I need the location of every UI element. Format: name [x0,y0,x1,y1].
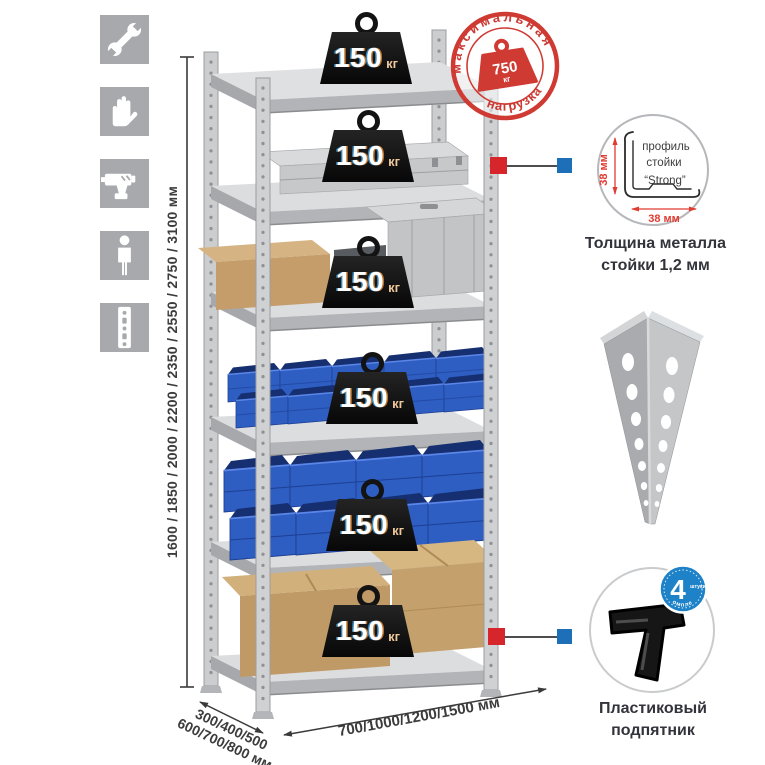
profile-caption-line1: Толщина металла [573,233,738,255]
max-load-stamp: максимальная нагрузка 750 кг [435,0,572,127]
profile-text-3: “Strong” [644,175,686,187]
profile-caption: Толщина металла стойки 1,2 мм [573,233,738,276]
load-unit: кг [388,629,400,644]
profile-caption-line2: стойки 1,2 мм [573,255,738,277]
angle-post-image [600,311,704,524]
load-unit: кг [386,56,398,71]
load-value: 150 [336,615,384,647]
profile-text-2: стойки [646,157,681,169]
foot-caption: Пластиковый подпятник [578,698,728,741]
load-value: 150 [336,140,384,172]
profile-dim-vertical: 38 мм [598,154,610,186]
foot-callout-connector [488,628,572,645]
load-value: 150 [340,509,388,541]
height-dimension-label: 1600 / 1850 / 2000 / 2200 / 2350 / 2550 … [164,186,180,558]
weight-ring [357,236,380,259]
product-infographic: 38 мм 38 мм профиль стойки “Strong” [0,0,765,765]
weight-ring [355,12,378,35]
shelf2-load-weight: 150 кг [322,110,414,182]
badge-word: штуки [690,584,706,590]
shelf1-load-weight: 150 кг [320,12,412,84]
load-value: 150 [336,266,384,298]
height-dimension-line [180,57,194,687]
foot-caption-line1: Пластиковый [578,698,728,720]
weight-ring [361,479,384,502]
badge-number: 4 [670,574,686,605]
weight-ring [357,585,380,608]
load-value: 150 [340,382,388,414]
profile-callout-connector [490,157,572,174]
profile-detail: 38 мм 38 мм профиль стойки “Strong” [598,115,708,225]
profile-text-1: профиль [642,141,690,153]
load-unit: кг [388,280,400,295]
weight-ring [357,110,380,133]
load-value: 150 [334,42,382,74]
shelf5-load-weight: 150 кг [326,479,418,551]
load-unit: кг [392,396,404,411]
shelf4-load-weight: 150 кг [326,352,418,424]
foot-caption-line2: подпятник [578,720,728,742]
load-unit: кг [392,523,404,538]
weight-ring [361,352,384,375]
shelf6-load-weight: 150 кг [322,585,414,657]
profile-dim-horizontal: 38 мм [648,213,680,225]
shelf3-load-weight: 150 кг [322,236,414,308]
load-unit: кг [388,154,400,169]
